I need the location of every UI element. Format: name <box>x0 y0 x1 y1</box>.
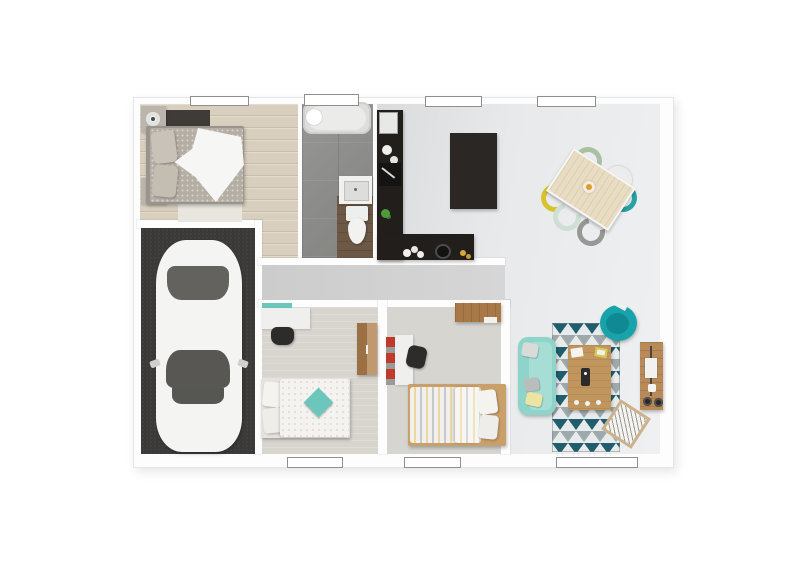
hallway-floor <box>262 265 505 300</box>
car-hood-shadow <box>172 388 224 404</box>
table-dot-1 <box>574 400 579 405</box>
bed-pillow-2 <box>151 164 178 198</box>
table-dot-3 <box>596 400 601 405</box>
lamp-top-dot <box>151 117 155 121</box>
kitchen-sink-3 <box>417 251 424 258</box>
coffee-table-paper2 <box>594 347 607 358</box>
bathroom-window <box>304 94 359 106</box>
kitchen-counter-bottom <box>377 234 474 260</box>
sofa-pillow-gray1 <box>521 342 539 359</box>
bedroom2-desk-chair <box>271 327 294 345</box>
sofa-pillow-gray2 <box>523 377 540 392</box>
tv-unit <box>645 358 657 378</box>
car <box>152 240 246 452</box>
kitchen-item-yellow2 <box>466 254 471 259</box>
bed-pillow-1 <box>150 130 178 165</box>
fruit <box>586 184 592 190</box>
bedroom3-shelf-item <box>484 317 497 323</box>
coffee-table-paper1 <box>570 347 583 358</box>
living-room-window <box>556 457 638 468</box>
speaker-1 <box>643 397 652 406</box>
speaker-2 <box>654 398 663 407</box>
bedroom2-wardrobe-handle <box>366 345 368 354</box>
remote-control <box>581 368 590 386</box>
bathtub-headrest <box>306 109 322 125</box>
armchair-seat <box>606 313 629 334</box>
bedroom-bench <box>166 110 210 126</box>
table-dot-2 <box>585 401 590 406</box>
kitchen-island <box>450 133 497 209</box>
dining-window <box>537 96 596 107</box>
bedroom3-pillow-1 <box>476 389 498 415</box>
remote-dot <box>584 372 587 375</box>
master-bedroom-window <box>190 96 249 106</box>
kitchen-cooktop <box>435 244 451 259</box>
kitchen-plant <box>381 209 390 218</box>
kitchen-kettle <box>382 145 392 155</box>
bedroom2-desk <box>261 308 310 329</box>
bedroom3-pillow-2 <box>478 414 499 440</box>
car-windshield <box>166 350 230 388</box>
car-rear-window <box>167 266 229 300</box>
bedroom2-window <box>287 457 343 468</box>
kitchen-sink-1 <box>403 249 411 257</box>
bedroom3-window <box>404 457 461 468</box>
floor-plan-rendering <box>0 0 800 568</box>
washbasin-bowl <box>344 181 369 201</box>
tv-accessory <box>648 384 656 392</box>
kitchen-window <box>425 96 482 107</box>
kitchen-oven <box>379 112 398 134</box>
washbasin-drain <box>354 188 357 191</box>
